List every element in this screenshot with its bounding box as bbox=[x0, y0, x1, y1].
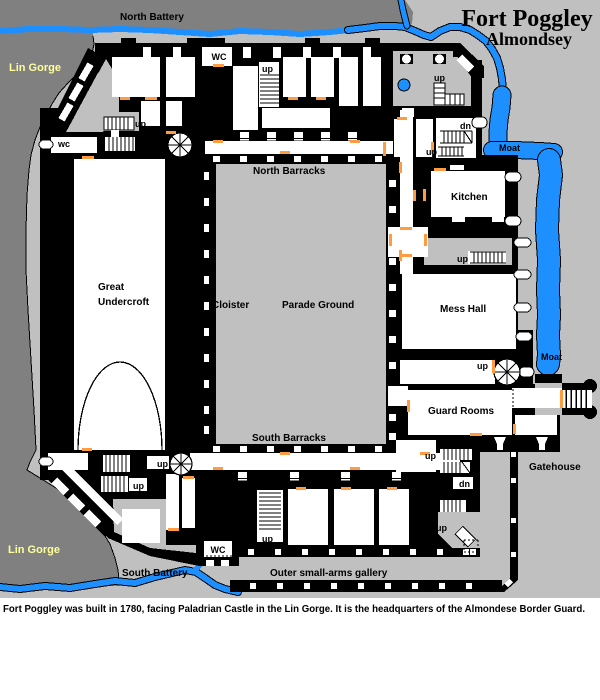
svg-text:WC: WC bbox=[211, 545, 226, 555]
svg-text:Outer small-arms gallery: Outer small-arms gallery bbox=[270, 568, 388, 579]
svg-text:up: up bbox=[262, 64, 273, 74]
svg-text:Almondsey: Almondsey bbox=[486, 29, 572, 49]
svg-text:up: up bbox=[426, 147, 437, 157]
svg-text:Cloister: Cloister bbox=[212, 300, 249, 311]
svg-text:North Barracks: North Barracks bbox=[253, 166, 326, 177]
svg-text:Mess Hall: Mess Hall bbox=[440, 304, 486, 315]
svg-text:up: up bbox=[158, 140, 169, 150]
svg-text:up: up bbox=[425, 451, 436, 461]
svg-text:up: up bbox=[434, 73, 445, 83]
svg-text:up: up bbox=[457, 254, 468, 264]
svg-text:Kitchen: Kitchen bbox=[451, 192, 488, 203]
svg-text:up: up bbox=[135, 119, 146, 129]
svg-text:up: up bbox=[157, 459, 168, 469]
svg-text:Gatehouse: Gatehouse bbox=[529, 462, 581, 473]
svg-text:dn: dn bbox=[460, 121, 471, 131]
svg-text:Lin Gorge: Lin Gorge bbox=[9, 62, 61, 74]
svg-text:up: up bbox=[133, 481, 144, 491]
svg-text:Undercroft: Undercroft bbox=[98, 297, 150, 308]
svg-text:Moat: Moat bbox=[499, 143, 520, 153]
svg-text:up: up bbox=[262, 534, 273, 544]
svg-text:Lin Gorge: Lin Gorge bbox=[8, 544, 60, 556]
svg-text:wc: wc bbox=[57, 139, 70, 149]
svg-text:Parade Ground: Parade Ground bbox=[282, 300, 354, 311]
svg-text:Guard Rooms: Guard Rooms bbox=[428, 406, 495, 417]
svg-text:Fort Poggley was built in 1780: Fort Poggley was built in 1780, facing P… bbox=[3, 604, 585, 615]
svg-text:Great: Great bbox=[98, 282, 125, 293]
svg-text:WC: WC bbox=[212, 52, 227, 62]
svg-text:South Battery: South Battery bbox=[122, 568, 188, 579]
svg-text:Moat: Moat bbox=[541, 352, 562, 362]
svg-text:North Battery: North Battery bbox=[120, 12, 184, 23]
svg-text:South Barracks: South Barracks bbox=[252, 433, 326, 444]
svg-text:up: up bbox=[436, 523, 447, 533]
svg-text:up: up bbox=[477, 361, 488, 371]
svg-text:dn: dn bbox=[459, 479, 470, 489]
